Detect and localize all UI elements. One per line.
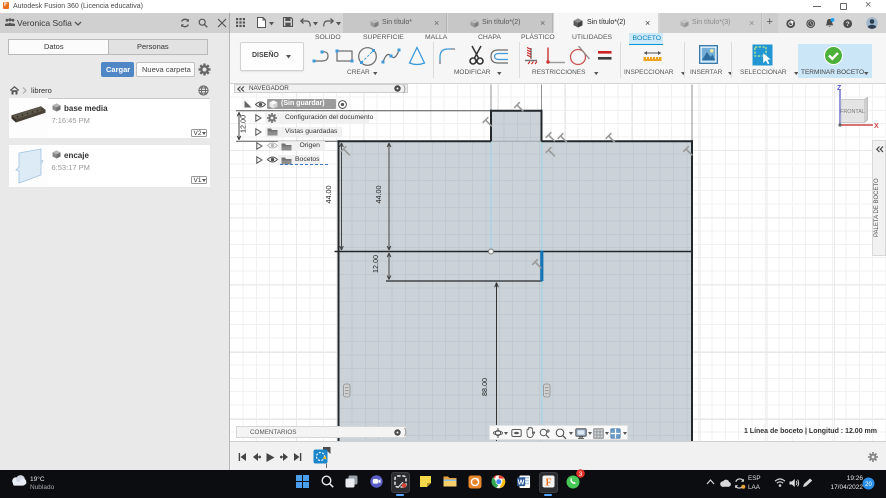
svg-text:FRONTAL: FRONTAL <box>840 109 865 115</box>
svg-text:12.00: 12.00 <box>239 115 248 133</box>
svg-text:W: W <box>518 477 525 486</box>
svg-text:X: X <box>874 123 879 130</box>
svg-text:44.00: 44.00 <box>324 186 333 204</box>
svg-text:20: 20 <box>865 482 872 488</box>
svg-text:3: 3 <box>579 471 583 478</box>
svg-text:88.00: 88.00 <box>480 378 489 396</box>
svg-text:?: ? <box>846 20 850 27</box>
svg-text:44.00: 44.00 <box>374 186 383 204</box>
svg-text:12.00: 12.00 <box>371 255 380 273</box>
svg-text:F: F <box>545 477 551 488</box>
svg-text:Z: Z <box>837 85 842 92</box>
